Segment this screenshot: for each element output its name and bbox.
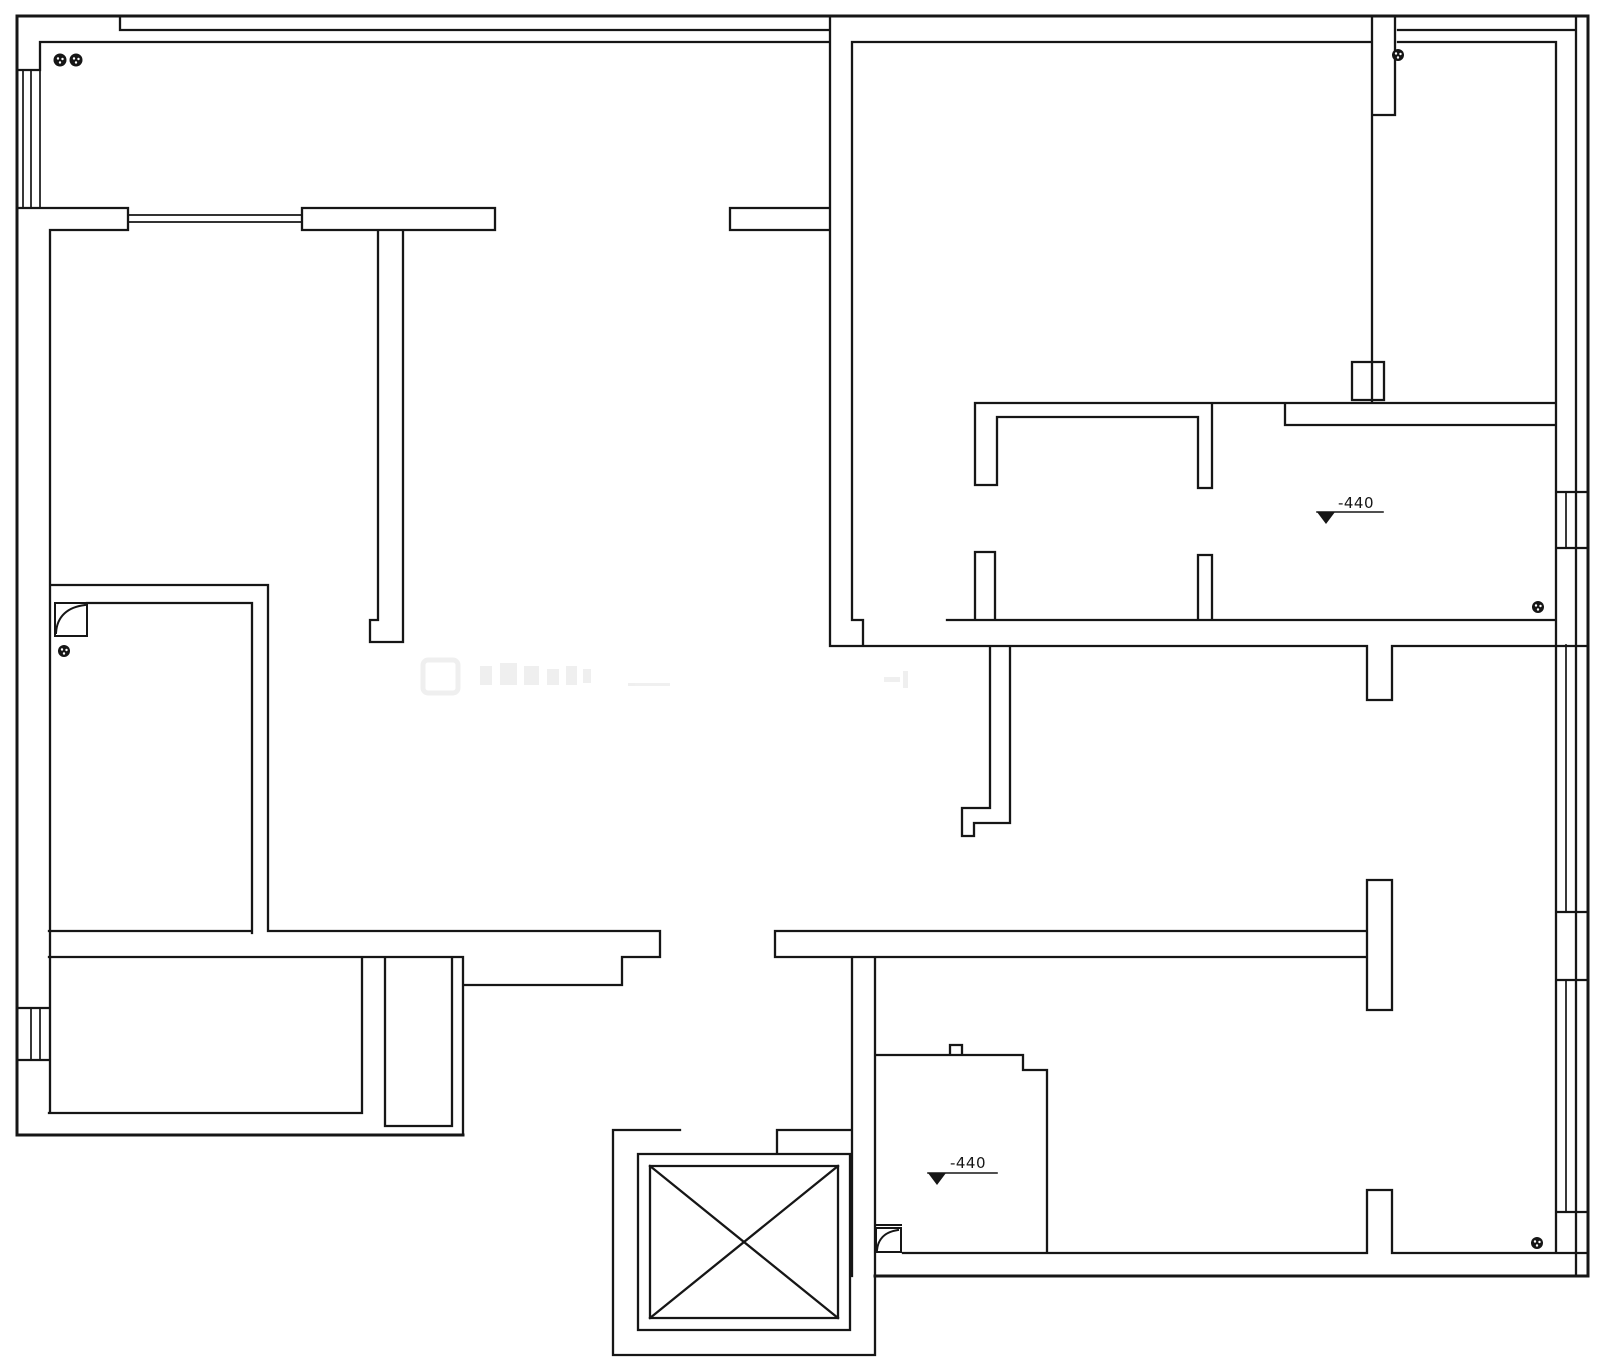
floor-plan-drawing: -440 -440 xyxy=(0,0,1600,1366)
dot-symbol-icon xyxy=(1532,601,1544,613)
dot-symbol-icon xyxy=(58,645,70,657)
dot-symbol-icon xyxy=(70,54,83,67)
level-marker-upper: -440 xyxy=(1317,494,1383,524)
dot-symbol-icon xyxy=(54,54,67,67)
level-triangle-icon xyxy=(928,1173,946,1185)
level-value: -440 xyxy=(950,1154,986,1172)
level-triangle-icon xyxy=(1317,512,1335,524)
window-left-lower-icon xyxy=(31,1008,40,1060)
watermark xyxy=(423,660,908,693)
door-leaf-left-icon xyxy=(55,603,87,636)
watermark-glyphs xyxy=(480,663,908,688)
floor-plan-canvas: -440 -440 xyxy=(0,0,1600,1366)
window-top-left-icon xyxy=(128,215,302,222)
dot-symbol-icon xyxy=(1531,1237,1543,1249)
window-symbols xyxy=(23,70,1566,1212)
level-value: -440 xyxy=(1338,494,1374,512)
watermark-logo-icon xyxy=(423,660,458,693)
door-leaf-entry-icon xyxy=(875,1225,901,1252)
dot-symbol-icon xyxy=(1392,49,1404,61)
window-left-upper-icon xyxy=(23,70,40,208)
elevator-x-brace xyxy=(650,1166,838,1318)
level-marker-lower: -440 xyxy=(928,1154,997,1185)
elevator-shaft-icon xyxy=(638,1154,850,1330)
